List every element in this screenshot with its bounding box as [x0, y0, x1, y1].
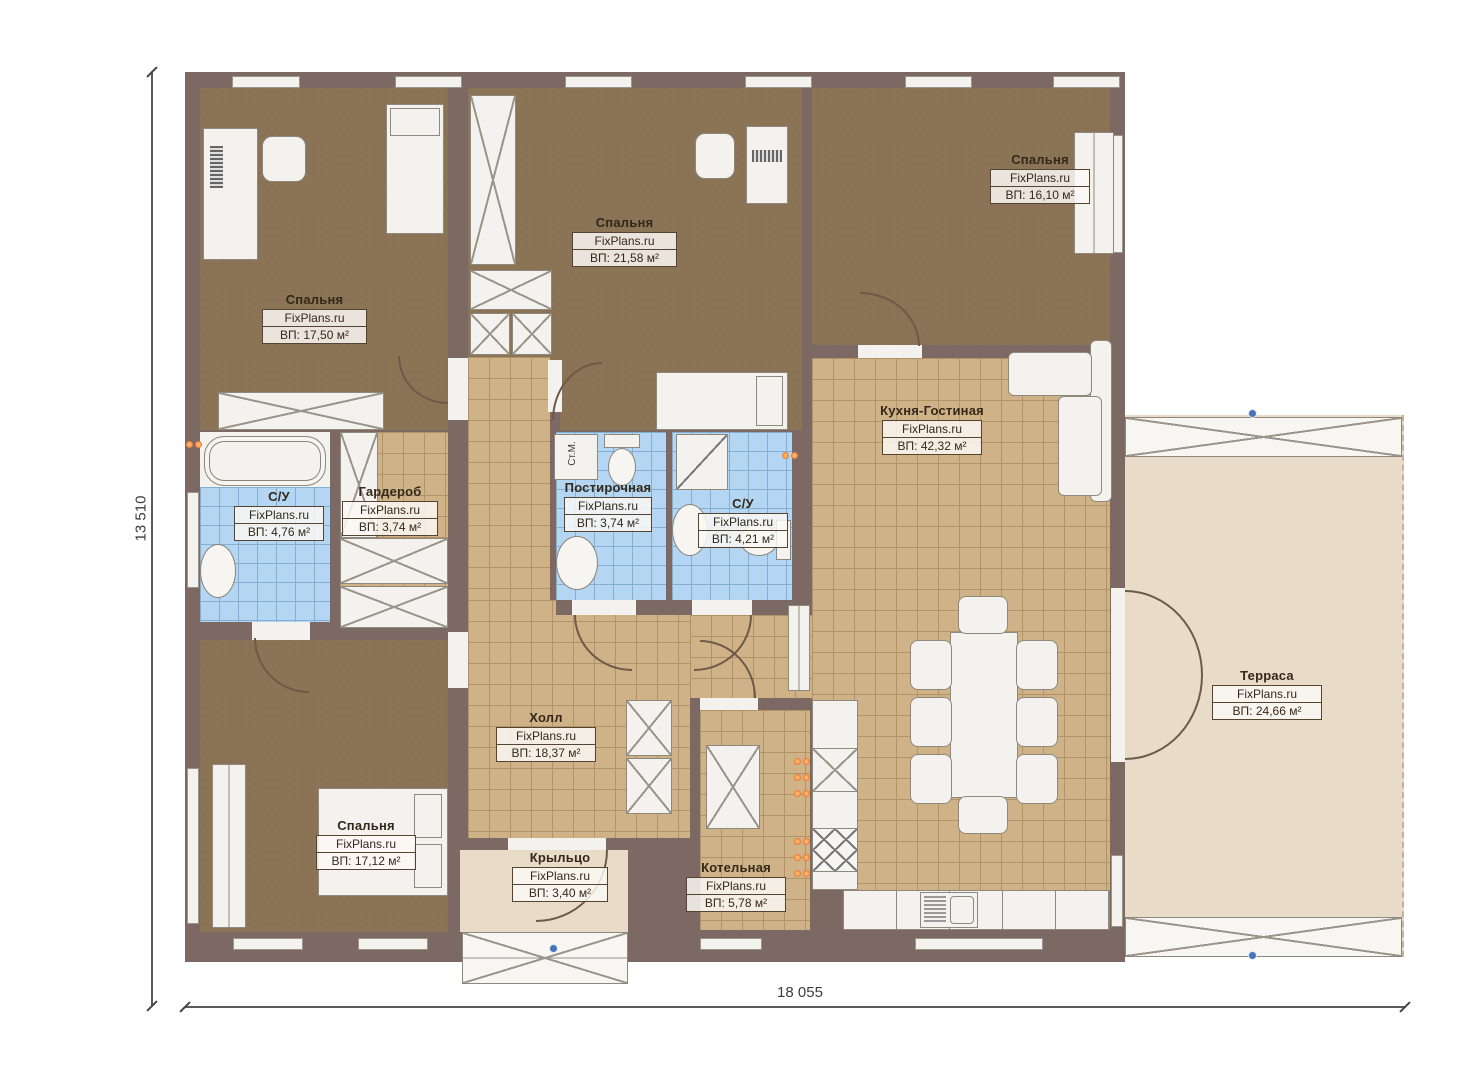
room-name: С/У	[698, 496, 788, 511]
door-opening-su2	[692, 600, 752, 615]
room-area: ВП: 17,50 м²	[262, 326, 367, 344]
utility-marker	[794, 870, 801, 877]
bed-pillow	[414, 844, 442, 888]
dining-table	[950, 632, 1018, 798]
terrace-marker-top	[1248, 409, 1257, 418]
shower-tray	[676, 434, 728, 490]
wall-hall-bottom-right	[606, 838, 690, 850]
bathroom-sink	[200, 544, 236, 598]
stove-burners	[812, 828, 858, 872]
hall-closet	[626, 700, 672, 756]
desk	[746, 126, 788, 204]
room-name: Гардероб	[342, 484, 438, 499]
utility-marker	[803, 870, 810, 877]
sofa-seat-vertical	[1058, 396, 1102, 496]
room-label-boiler: Котельная FixPlans.ru ВП: 5,78 м²	[686, 860, 786, 912]
room-area: ВП: 24,66 м²	[1212, 702, 1322, 720]
bathtub	[204, 436, 326, 486]
toilet-tank	[604, 434, 640, 448]
sink-basin	[950, 896, 974, 924]
dining-chair	[910, 697, 952, 747]
wall-under-laundry-2	[636, 600, 692, 615]
watermark: FixPlans.ru	[1212, 685, 1322, 703]
room-label-laundry: Постирочная FixPlans.ru ВП: 3,74 м²	[558, 480, 658, 532]
room-name: Кухня-Гостиная	[870, 403, 994, 418]
utility-marker	[782, 452, 789, 459]
room-area: ВП: 21,58 м²	[572, 249, 677, 267]
window-top-4	[745, 76, 812, 88]
door-opening-bedroom4	[448, 632, 468, 688]
utility-marker	[803, 758, 810, 765]
watermark: FixPlans.ru	[512, 867, 608, 885]
room-area: ВП: 5,78 м²	[686, 894, 786, 912]
floor-plan-page: { "dimensions": { "width_label": "18 055…	[0, 0, 1474, 1080]
hall-corridor-floor	[468, 357, 550, 600]
room-area: ВП: 16,10 м²	[990, 186, 1090, 204]
hall-closet	[626, 758, 672, 814]
dining-chair	[1016, 640, 1058, 690]
radiator	[788, 605, 810, 691]
wall-hall-bottom-left	[460, 838, 508, 850]
watermark: FixPlans.ru	[564, 497, 652, 515]
dining-chair	[910, 754, 952, 804]
wall-passage-boiler-left	[690, 698, 700, 710]
window-bottom-kitchen	[915, 938, 1043, 950]
porch-marker	[549, 944, 558, 953]
room-name: Терраса	[1212, 668, 1322, 683]
utility-marker	[803, 838, 810, 845]
watermark: FixPlans.ru	[572, 232, 677, 250]
watermark: FixPlans.ru	[686, 877, 786, 895]
monitor-icon	[752, 150, 782, 162]
sink-drainer	[924, 896, 946, 924]
room-area: ВП: 4,76 м²	[234, 523, 324, 541]
washing-machine-label: Ст.М.	[567, 441, 578, 466]
built-in-closet	[470, 313, 510, 355]
wall-under-su2	[752, 600, 792, 615]
window-bottom-2	[358, 938, 428, 950]
bedroom-top-right-floor	[812, 88, 1110, 345]
utility-marker	[186, 441, 193, 448]
room-area: ВП: 3,74 м²	[342, 518, 438, 536]
wardrobe-cabinet	[218, 392, 384, 430]
door-opening-terrace	[1111, 588, 1125, 762]
dimension-width-label: 18 055	[755, 984, 845, 1001]
window-bottom-1	[233, 938, 303, 950]
room-label-bathroom-mid: С/У FixPlans.ru ВП: 4,21 м²	[698, 496, 788, 548]
room-label-bathroom-left: С/У FixPlans.ru ВП: 4,76 м²	[234, 489, 324, 541]
dining-chair	[958, 596, 1008, 634]
room-area: ВП: 4,21 м²	[698, 530, 788, 548]
dining-chair	[958, 796, 1008, 834]
window-top-3	[565, 76, 632, 88]
kitchen-sink-left	[812, 748, 858, 792]
bed-pillow	[390, 108, 440, 136]
dining-chair	[1016, 754, 1058, 804]
window-left-bedroom4	[187, 768, 199, 924]
room-area: ВП: 42,32 м²	[882, 437, 982, 455]
window-top-1	[232, 76, 300, 88]
utility-marker	[794, 790, 801, 797]
bed-pillow	[756, 376, 783, 426]
door-opening-bedroom1	[448, 358, 468, 420]
room-name: Спальня	[316, 818, 416, 833]
door-opening-laundry	[572, 600, 636, 615]
office-chair	[695, 133, 735, 179]
utility-marker	[794, 838, 801, 845]
terrace-roof-edge-bottom	[1125, 917, 1402, 957]
room-area: ВП: 17,12 м²	[316, 852, 416, 870]
built-in-closet	[470, 95, 516, 265]
terrace-roof-edge-top	[1125, 417, 1402, 457]
room-name: Постирочная	[558, 480, 658, 495]
wall-under-laundry-1	[556, 600, 572, 615]
room-label-bedroom-top-mid: Спальня FixPlans.ru ВП: 21,58 м²	[572, 215, 677, 267]
door-opening-entry	[508, 838, 606, 850]
utility-marker	[803, 854, 810, 861]
window-left-bathroom	[187, 492, 199, 588]
room-label-bedroom-top-left: Спальня FixPlans.ru ВП: 17,50 м²	[262, 292, 367, 344]
sliding-wardrobe	[212, 764, 246, 928]
built-in-closet	[512, 313, 552, 355]
door-opening-boiler	[700, 698, 758, 710]
room-area: ВП: 3,40 м²	[512, 884, 608, 902]
watermark: FixPlans.ru	[342, 501, 438, 519]
room-name: Котельная	[686, 860, 786, 875]
utility-marker	[803, 774, 810, 781]
boiler-unit	[706, 745, 760, 829]
room-label-terrace: Терраса FixPlans.ru ВП: 24,66 м²	[1212, 668, 1322, 720]
monitor-icon	[210, 146, 223, 188]
room-name: Крыльцо	[512, 850, 608, 865]
dimension-line-left	[151, 72, 153, 1006]
door-opening-bedroom3	[858, 345, 922, 358]
watermark: FixPlans.ru	[990, 169, 1090, 187]
sofa-seat-horizontal	[1008, 352, 1092, 396]
watermark: FixPlans.ru	[882, 420, 982, 438]
office-chair	[262, 136, 306, 182]
room-name: Спальня	[262, 292, 367, 307]
dimension-height-label: 13 510	[133, 474, 150, 564]
dining-chair	[1016, 697, 1058, 747]
terrace-marker-bottom	[1248, 951, 1257, 960]
room-label-wardrobe: Гардероб FixPlans.ru ВП: 3,74 м²	[342, 484, 438, 536]
window-bottom-boiler	[700, 938, 762, 950]
bed-pillow	[414, 794, 442, 838]
room-name: С/У	[234, 489, 324, 504]
room-area: ВП: 18,37 м²	[496, 744, 596, 762]
wardrobe-closet	[340, 538, 448, 584]
room-label-kitchen-living: Кухня-Гостиная FixPlans.ru ВП: 42,32 м²	[870, 403, 994, 455]
watermark: FixPlans.ru	[316, 835, 416, 853]
room-name: Спальня	[990, 152, 1090, 167]
utility-marker	[803, 790, 810, 797]
utility-marker	[791, 452, 798, 459]
dining-chair	[910, 640, 952, 690]
utility-marker	[794, 774, 801, 781]
dimension-line-bottom	[185, 1006, 1405, 1008]
watermark: FixPlans.ru	[262, 309, 367, 327]
utility-marker	[195, 441, 202, 448]
room-area: ВП: 3,74 м²	[564, 514, 652, 532]
window-top-2	[395, 76, 462, 88]
window-top-5	[905, 76, 972, 88]
room-label-porch: Крыльцо FixPlans.ru ВП: 3,40 м²	[512, 850, 608, 902]
utility-marker	[794, 758, 801, 765]
room-name: Холл	[496, 710, 596, 725]
room-label-bedroom-bottom-left: Спальня FixPlans.ru ВП: 17,12 м²	[316, 818, 416, 870]
laundry-sink	[556, 536, 598, 590]
wall-passage-boiler-right	[758, 698, 812, 710]
watermark: FixPlans.ru	[698, 513, 788, 531]
window-top-6	[1053, 76, 1120, 88]
window-right-kitchen	[1111, 855, 1123, 927]
room-label-hall: Холл FixPlans.ru ВП: 18,37 м²	[496, 710, 596, 762]
watermark: FixPlans.ru	[234, 506, 324, 524]
room-name: Спальня	[572, 215, 677, 230]
utility-marker	[794, 854, 801, 861]
wardrobe-closet	[340, 586, 448, 628]
built-in-closet	[470, 270, 552, 310]
porch-steps	[462, 932, 628, 984]
watermark: FixPlans.ru	[496, 727, 596, 745]
room-label-bedroom-top-right: Спальня FixPlans.ru ВП: 16,10 м²	[990, 152, 1090, 204]
